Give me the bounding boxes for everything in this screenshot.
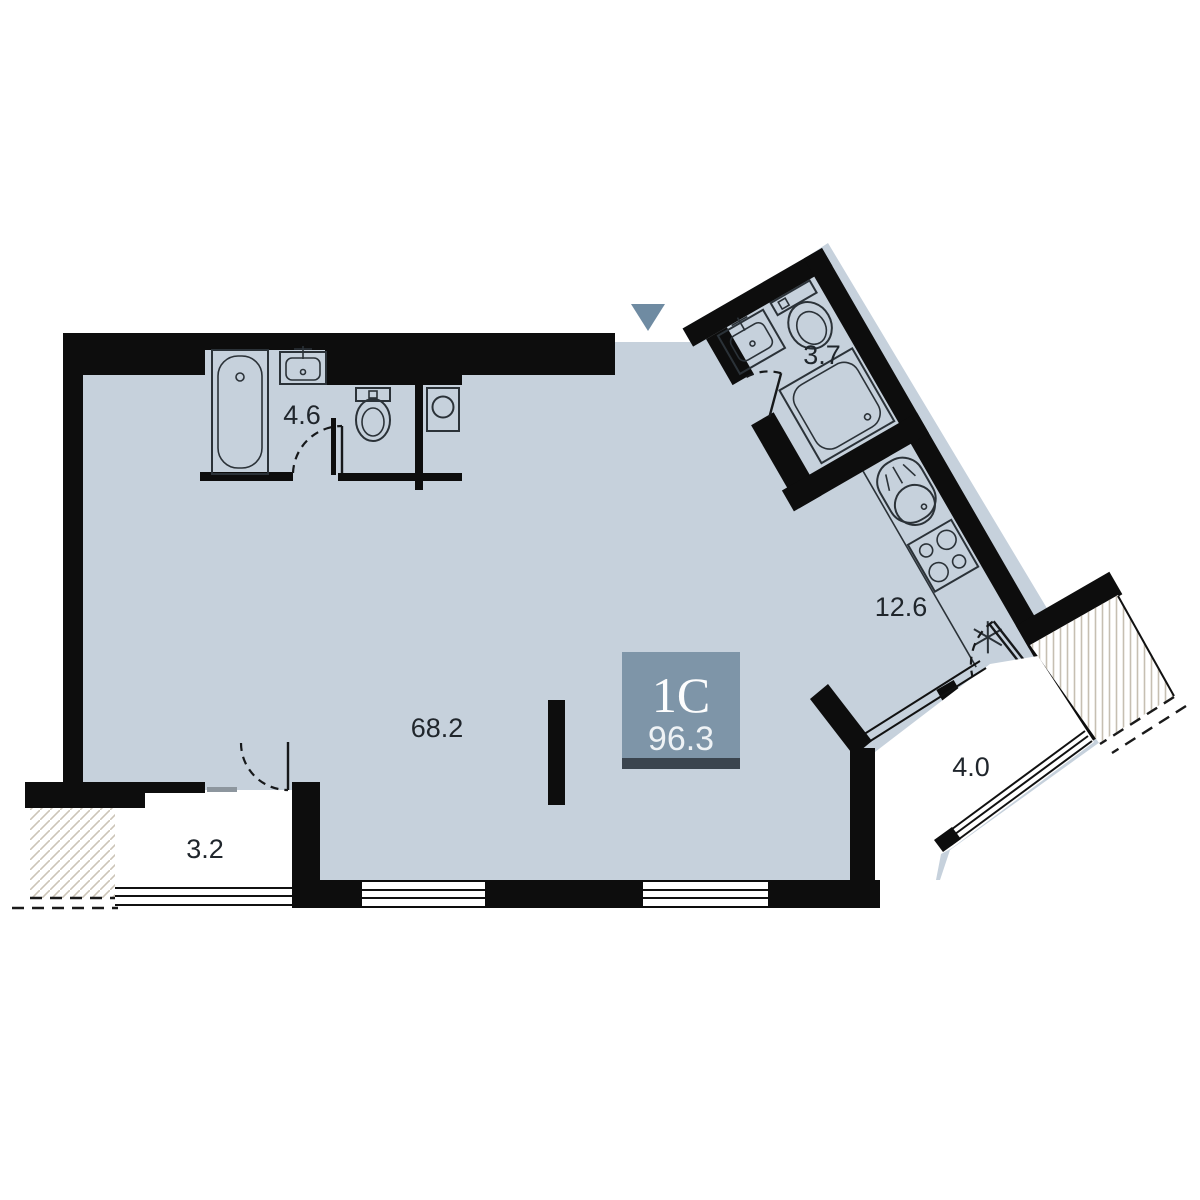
area-label-living: 68.2 (411, 713, 464, 743)
free-standing-wall (548, 700, 565, 805)
area-label-shower-room: 3.7 (803, 340, 841, 370)
loggia-wall-thin (143, 782, 205, 793)
unit-total-area: 96.3 (648, 720, 714, 758)
window-2 (643, 882, 768, 906)
unit-type-label: 1С (652, 667, 710, 723)
loggia-threshold (207, 787, 237, 792)
unit-box-bar (622, 758, 740, 769)
floor-plan: 4.6 3.7 12.6 68.2 3.2 4.0 1С 96.3 (0, 0, 1200, 1200)
entrance-arrow-icon (631, 304, 665, 331)
open-terrace-hatch (30, 808, 115, 898)
entrance-threshold (613, 329, 692, 342)
area-label-bathroom: 4.6 (283, 400, 321, 430)
loggia-wall-left (25, 782, 145, 808)
area-label-balcony: 4.0 (952, 752, 990, 782)
floor-plan-page: 4.6 3.7 12.6 68.2 3.2 4.0 1С 96.3 (0, 0, 1200, 1200)
unit-info-box: 1С 96.3 (622, 652, 740, 769)
area-label-kitchen: 12.6 (875, 592, 928, 622)
window-1 (362, 882, 485, 906)
area-label-loggia: 3.2 (186, 834, 224, 864)
